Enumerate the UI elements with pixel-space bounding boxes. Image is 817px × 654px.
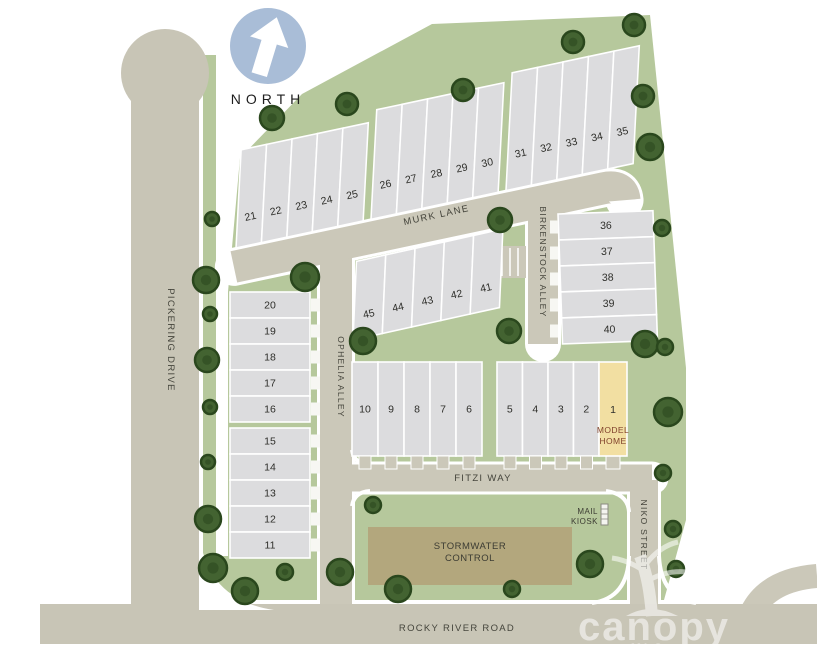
mail-kiosk-icon: [601, 504, 608, 525]
driveway-stub: [606, 456, 620, 469]
lot-number: 18: [264, 352, 276, 364]
tree-icon: [193, 267, 219, 293]
lot-parcel: [338, 123, 369, 227]
lot-parcel: [441, 235, 474, 320]
driveway-stub: [530, 456, 542, 469]
lot-number: 38: [602, 272, 614, 284]
tree-icon: [654, 220, 670, 236]
lot-number: 7: [440, 404, 446, 416]
lot-number: 37: [601, 246, 613, 258]
lot-number: 9: [388, 404, 394, 416]
lot-number: 36: [600, 220, 612, 232]
tree-icon: [260, 106, 284, 130]
lot-number: 8: [414, 404, 420, 416]
tree-icon: [654, 398, 682, 426]
tree-icon: [195, 506, 221, 532]
driveway-stub: [504, 456, 516, 469]
driveway-stub: [555, 456, 567, 469]
driveway-stub: [359, 456, 371, 469]
driveway-stub: [463, 456, 475, 469]
driveway-mark: [311, 487, 320, 500]
street-label-pickering-drive: PICKERING DRIVE: [165, 288, 176, 391]
tree-icon: [665, 521, 681, 537]
driveway-mark: [550, 273, 558, 286]
driveway-stub: [385, 456, 397, 469]
site-plan-map: STORMWATER CONTROL MAIL KIOSK 2122232425…: [0, 0, 817, 654]
lot-number: 15: [264, 436, 276, 448]
tree-icon: [623, 14, 645, 36]
driveway-mark: [311, 377, 320, 390]
driveway-mark: [311, 435, 320, 448]
driveway-mark: [311, 351, 320, 364]
lot-number: 14: [264, 462, 276, 474]
lot-row: 5432: [497, 362, 599, 456]
tree-icon: [327, 559, 353, 585]
lot-parcel: [353, 255, 386, 340]
lot-number: 17: [264, 378, 276, 390]
tree-icon: [350, 328, 376, 354]
pickering-drive-road: [131, 70, 199, 620]
stormwater-label-1: STORMWATER: [434, 541, 506, 552]
tree-icon: [232, 578, 258, 604]
lot-number: 39: [603, 298, 615, 310]
north-label: NORTH: [231, 91, 306, 107]
driveway-mark: [550, 325, 558, 338]
lot-number: 5: [507, 404, 513, 416]
tree-icon: [632, 85, 654, 107]
lot-number: 2: [583, 404, 589, 416]
driveway-mark: [311, 299, 320, 312]
tree-icon: [336, 93, 358, 115]
model-home-lot-number: 1: [610, 404, 616, 416]
street-label-ophelia-alley: OPHELIA ALLEY: [336, 336, 346, 418]
tree-icon: [637, 134, 663, 160]
lot-parcel: [470, 229, 503, 314]
tree-icon: [655, 465, 671, 481]
lot-number: 12: [264, 514, 276, 526]
watermark-sub: MLS: [631, 641, 665, 654]
lot-row: 2019181716: [230, 292, 310, 422]
driveway-stub: [437, 456, 449, 469]
model-home-label-1: MODEL: [597, 425, 629, 435]
lot-number: 16: [264, 404, 276, 416]
model-home-label-2: HOME: [599, 436, 626, 446]
driveway-mark: [311, 325, 320, 338]
lot-number: 3: [558, 404, 564, 416]
lot-parcel: [608, 46, 640, 169]
lot-number: 20: [264, 300, 276, 312]
tree-icon: [199, 554, 227, 582]
tree-icon: [497, 319, 521, 343]
tree-icon: [488, 208, 512, 232]
mail-kiosk: MAIL KIOSK: [571, 504, 608, 526]
lot-row: 3637383940: [558, 211, 657, 344]
site-plan-page: STORMWATER CONTROL MAIL KIOSK 2122232425…: [0, 0, 817, 654]
mail-kiosk-label-2: KIOSK: [571, 517, 598, 526]
tree-icon: [385, 576, 411, 602]
tree-icon: [657, 339, 673, 355]
street-label-fitzi-way: FITZI WAY: [454, 473, 512, 484]
tree-icon: [201, 455, 215, 469]
north-compass: NORTH: [230, 8, 306, 107]
lot-parcel: [473, 83, 504, 198]
lot-number: 19: [264, 326, 276, 338]
driveway-mark: [311, 513, 320, 526]
lot-number: 40: [604, 324, 616, 336]
driveway-mark: [311, 461, 320, 474]
driveway-mark: [550, 299, 558, 312]
lot-row: 109876: [352, 362, 482, 456]
tree-icon: [203, 400, 217, 414]
lot-parcel: [382, 248, 415, 333]
tree-icon: [277, 564, 293, 580]
lot-number: 11: [265, 540, 276, 552]
tree-icon: [203, 307, 217, 321]
tree-icon: [291, 263, 319, 291]
model-home-lot: 1 MODEL HOME: [597, 362, 629, 456]
driveway-mark: [550, 247, 558, 260]
street-label-rocky-river-road: ROCKY RIVER ROAD: [399, 623, 515, 634]
lot-number: 4: [532, 404, 538, 416]
lot-row: 1514131211: [230, 428, 310, 558]
tree-icon: [365, 497, 381, 513]
driveway-stub: [411, 456, 423, 469]
lot-parcel: [412, 242, 445, 327]
lot-number: 13: [264, 488, 276, 500]
stormwater-label-2: CONTROL: [445, 553, 495, 564]
lot-number: 10: [359, 404, 371, 416]
driveway-mark: [550, 221, 558, 234]
tree-icon: [504, 581, 520, 597]
tree-icon: [562, 31, 584, 53]
tree-icon: [205, 212, 219, 226]
mail-kiosk-label-1: MAIL: [577, 507, 598, 516]
tree-icon: [632, 331, 658, 357]
tree-icon: [195, 348, 219, 372]
tree-icon: [452, 79, 474, 101]
driveway-mark: [311, 403, 320, 416]
street-label-birkenstock-alley: BIRKENSTOCK ALLEY: [538, 206, 548, 317]
driveway-stub: [581, 456, 593, 469]
lot-number: 6: [466, 404, 472, 416]
driveway-mark: [311, 539, 320, 552]
tree-icon: [577, 551, 603, 577]
